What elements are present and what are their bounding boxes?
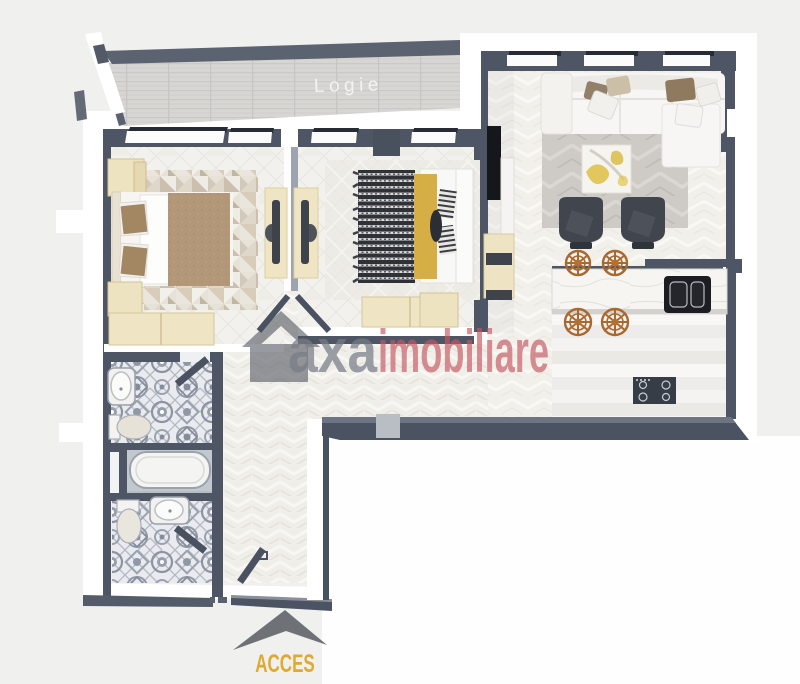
svg-text:ACCES: ACCES [255, 650, 314, 678]
svg-text:axa: axa [288, 317, 377, 386]
svg-text:Logie: Logie [314, 74, 383, 97]
svg-text:imobiliare: imobiliare [378, 318, 549, 385]
